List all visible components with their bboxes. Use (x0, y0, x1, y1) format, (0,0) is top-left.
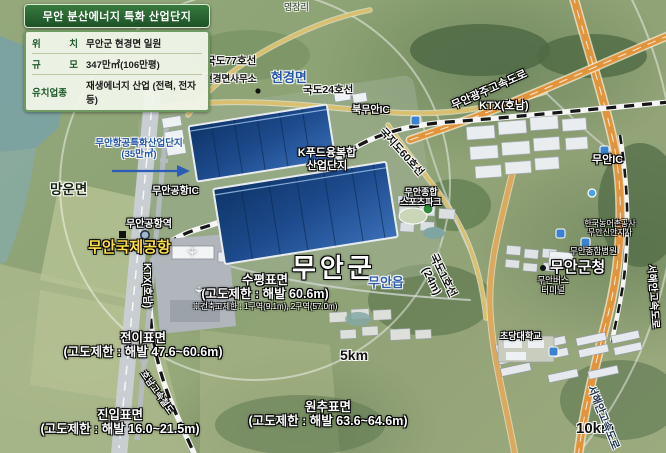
label-township: 현경면 (271, 71, 307, 86)
info-row-industry: 유치업종 재생에너지 산업 (전력, 전자 등) (32, 75, 202, 109)
label-approach-surface: 진입표면 (고도제한 : 해발 16.0~21.5m) (34, 408, 206, 437)
label-muan-intl-airport: 무안국제공항 (88, 239, 171, 256)
label-kfood-complex: K푸드융복합 산업단지 (294, 147, 360, 172)
airplane-icon: ✈ (183, 247, 199, 258)
info-row-label: 위 치 (32, 36, 78, 50)
label-muan-ic: 무안IC (592, 154, 623, 167)
map-canvas: 무안 분산에너지 특화 산업단지 위 치 무안군 현경면 일원 규 모 347만… (0, 0, 666, 453)
transition-surface-limit: (고도제한 : 해발 47.6~60.6m) (62, 345, 224, 359)
info-row-location: 위 치 무안군 현경면 일원 (32, 33, 202, 54)
label-chodang-university: 초당대학교 (500, 331, 541, 341)
approach-surface-limit: (고도제한 : 해발 16.0~21.5m) (34, 422, 206, 436)
label-ktx-line: KTX(호남) (479, 100, 529, 113)
pond (345, 312, 371, 326)
label-village-top: 영장리 (284, 2, 309, 12)
label-muan-eup: 무안읍 (368, 276, 404, 291)
transition-surface-name: 전이표면 (62, 331, 224, 345)
approach-surface-name: 진입표면 (34, 408, 206, 422)
info-row-label: 규 모 (32, 57, 78, 71)
label-conical-surface: 원추표면 (고도제한 : 해발 63.6~64.6m) (232, 400, 424, 429)
label-sports-park-line1: 무안종합 (392, 187, 450, 197)
label-bus-terminal: 무안버스 터미널 (534, 276, 572, 296)
project-info-box: 무안 분산에너지 특화 산업단지 위 치 무안군 현경면 일원 규 모 347만… (24, 4, 210, 112)
label-sports-park-line2: 스포츠파크 (392, 197, 450, 207)
label-route-24: 국도24호선 (303, 84, 353, 96)
label-township-office: 현경면사무소 (204, 75, 256, 86)
label-aviation-complex: 무안항공특화산업단지 (35만㎡) (74, 139, 204, 161)
label-kfood-line2: 산업단지 (294, 160, 360, 173)
info-box-title: 무안 분산에너지 특화 산업단지 (24, 4, 210, 28)
info-row-size: 규 모 347만㎡(106만평) (32, 54, 202, 75)
label-rural-corp: 한국농어촌공사 무안신안지사 (576, 219, 644, 237)
label-rural-corp-line1: 한국농어촌공사 (576, 219, 644, 228)
label-5km: 5km (340, 347, 368, 363)
label-sports-park: 무안종합 스포츠파크 (392, 187, 450, 208)
label-airport-ic: 무안공항IC (152, 186, 199, 198)
label-transition-surface: 전이표면 (고도제한 : 해발 47.6~60.6m) (62, 331, 224, 360)
info-row-label: 유치업종 (32, 85, 78, 99)
conical-surface-limit: (고도제한 : 해발 63.6~64.6m) (232, 414, 424, 428)
label-ktx-vertical: KTX(호남) (141, 263, 153, 308)
label-county-office: 무안군청 (550, 259, 605, 276)
conical-surface-name: 원추표면 (232, 400, 424, 414)
label-kfood-line1: K푸드융복합 (294, 147, 360, 160)
info-row-value: 재생에너지 산업 (전력, 전자 등) (86, 78, 202, 106)
label-airport-station: 무안공항역 (126, 219, 172, 231)
info-row-value: 무안군 현경면 일원 (86, 36, 202, 50)
info-row-value: 347만㎡(106만평) (86, 57, 202, 71)
label-rural-corp-line2: 무안신안지사 (576, 228, 644, 237)
label-bukmuan-ic: 북무안IC (352, 105, 390, 117)
label-route-77: 국도77호선 (206, 55, 256, 67)
airplane-icon: ✈ (192, 286, 205, 295)
label-hospital: 무안종합병원 (570, 247, 617, 257)
label-aviation-complex-line2: (35만㎡) (74, 150, 204, 161)
label-mangun-myeon: 망운면 (50, 182, 87, 198)
label-bus-terminal-line2: 터미널 (534, 286, 572, 296)
horizontal-surface-note: ※건축고제한 : 1구역(9.1m), 2구역(57.0m) (168, 302, 362, 311)
info-box-body: 위 치 무안군 현경면 일원 규 모 347만㎡(106만평) 유치업종 재생에… (24, 30, 210, 112)
urban-area-northeast (466, 114, 590, 179)
